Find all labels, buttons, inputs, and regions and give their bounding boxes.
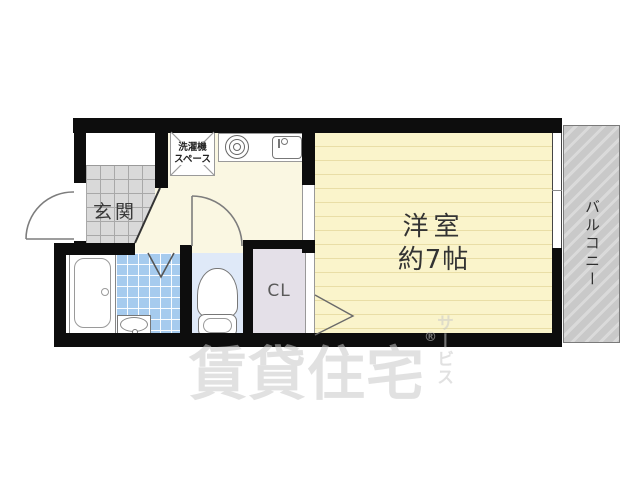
laundry-label-line2: スペース — [174, 154, 211, 165]
wall-bottom — [54, 333, 562, 347]
wall-toilet-closet — [243, 245, 253, 333]
main-room-doorway — [302, 185, 315, 245]
laundry-label-line1: 洗濯機 — [178, 142, 207, 153]
wall-bath-left — [54, 243, 66, 347]
main-room-label-line2: 約7帖 — [315, 244, 552, 277]
balcony-window-divider — [552, 190, 562, 191]
closet-label: CL — [253, 249, 305, 333]
wall-left-upper — [74, 133, 86, 183]
main-room-label: 洋室 約7帖 — [315, 211, 552, 276]
closet-opening — [305, 253, 315, 333]
stove-burner-center — [233, 143, 241, 151]
main-room-label-line1: 洋室 — [315, 211, 552, 244]
wall-right-lower — [552, 248, 562, 347]
toilet-tank-inner — [203, 318, 232, 333]
entrance-door-icon — [26, 192, 74, 239]
kitchen-faucet-icon — [281, 138, 288, 145]
entrance-label: 玄関 — [84, 197, 146, 224]
wall-entry-laundry — [155, 133, 168, 188]
entrance-storage — [86, 133, 155, 166]
bathtub-knob — [101, 288, 109, 296]
toilet-icon — [197, 268, 238, 318]
laundry-label: 洗濯機 スペース — [170, 131, 215, 176]
wall-closet-top — [243, 240, 315, 249]
wall-kitchen-room — [302, 133, 315, 185]
floorplan-canvas: 玄関 洗濯機 スペース 洋室 約7帖 CL バルコニー 賃貸住宅 ® サービス — [0, 0, 640, 480]
wall-bath-toilet — [180, 245, 192, 333]
wall-bath-top — [54, 243, 135, 255]
balcony-label: バルコニー — [582, 199, 603, 289]
wall-top — [73, 118, 562, 133]
kitchen-faucet-stem — [278, 139, 280, 148]
